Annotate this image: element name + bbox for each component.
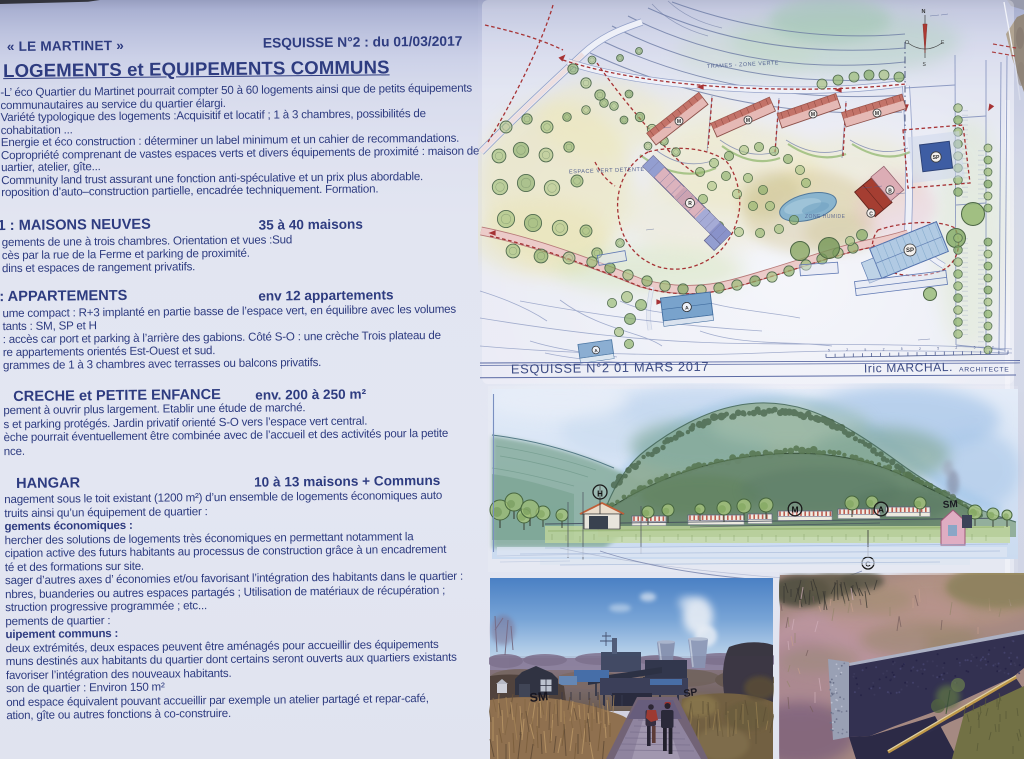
svg-text:A: A: [878, 505, 884, 515]
svg-text:H: H: [597, 490, 603, 499]
svg-text:SM: SM: [942, 499, 958, 511]
svg-text:M: M: [791, 505, 798, 515]
